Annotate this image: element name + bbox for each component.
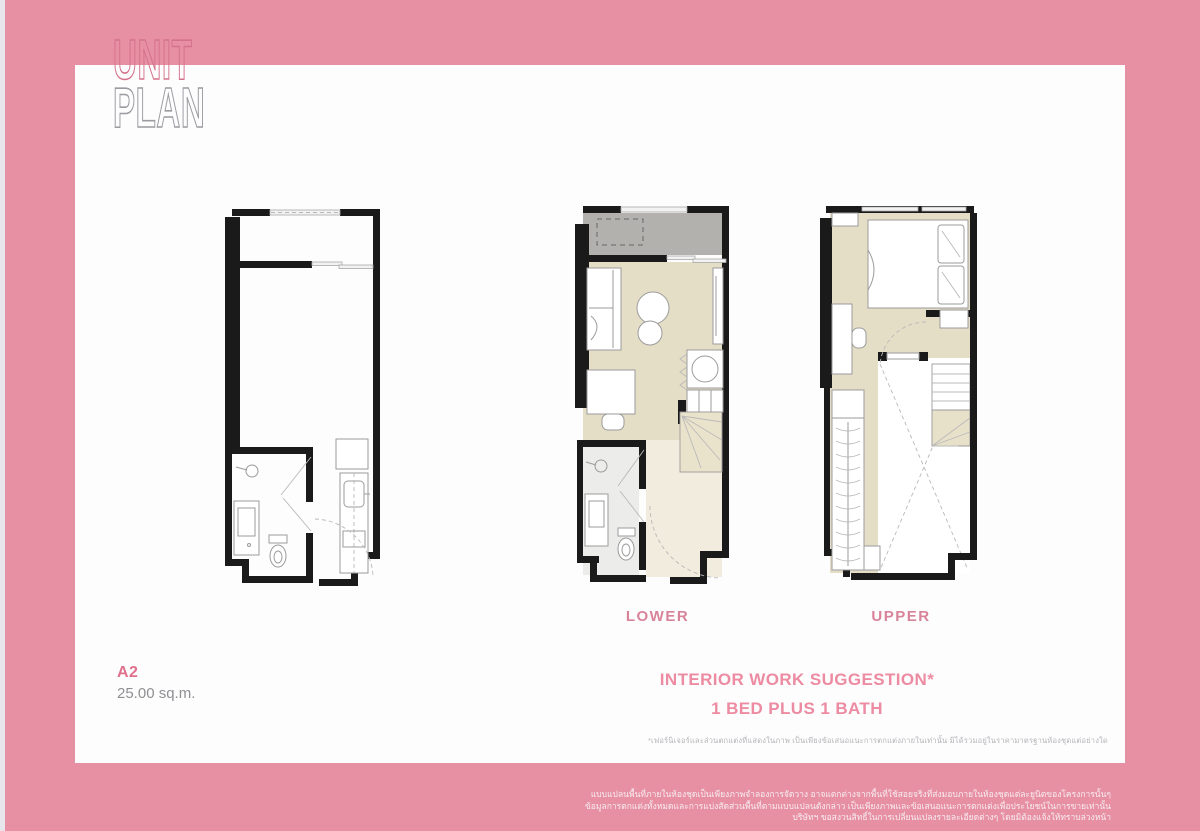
floorplan-upper-drawing [820, 204, 979, 603]
floorplan-a2-drawing [222, 205, 387, 603]
label-lower: LOWER [575, 608, 740, 625]
unit-code: A2 [117, 664, 195, 682]
page-title: UNIT PLAN [113, 36, 272, 132]
floorplan-upper [820, 204, 979, 603]
disclaimer-line: บริษัทฯ ขอสงวนสิทธิ์ในการเปลี่ยนแปลงรายล… [585, 812, 1111, 824]
title-plan: PLAN [113, 84, 205, 132]
interior-suggestion: INTERIOR WORK SUGGESTION* 1 BED PLUS 1 B… [597, 665, 997, 723]
kitchen-counter [336, 439, 370, 573]
staircase [680, 412, 722, 472]
storage-box-icon [864, 546, 880, 570]
unit-plan-page: UNIT PLAN [0, 0, 1200, 831]
sliding-door [667, 256, 726, 263]
counter-icon [687, 390, 723, 412]
floorplan-lower [575, 204, 736, 603]
bed-icon [868, 220, 968, 308]
footer-disclaimer: แบบแปลนพื้นที่ภายในห้องชุดเป็นเพียงภาพจำ… [585, 789, 1111, 824]
footnote-text: *เฟอร์นิเจอร์และส่วนตกแต่งที่แสดงในภาพ เ… [648, 735, 1108, 747]
label-upper: UPPER [820, 608, 982, 625]
bathroom-fixtures [234, 457, 311, 567]
nightstand-icon [940, 310, 968, 328]
floorplan-a2 [222, 205, 387, 603]
sliding-door [312, 262, 373, 269]
floorplan-lower-drawing [575, 204, 736, 603]
balcony-rail [270, 210, 340, 215]
staircase [932, 364, 970, 446]
wardrobe-icon [832, 390, 864, 570]
suggestion-subheading: 1 BED PLUS 1 BATH [597, 694, 997, 723]
disclaimer-line: ข้อมูลการตกแต่งทั้งหมดและการแบ่งสัดส่วนพ… [585, 801, 1111, 813]
unit-info: A2 25.00 sq.m. [117, 664, 195, 702]
balcony-floor [583, 213, 729, 255]
sofa-icon [587, 268, 621, 350]
tv-console-icon [713, 268, 723, 344]
disclaimer-line: แบบแปลนพื้นที่ภายในห้องชุดเป็นเพียงภาพจำ… [585, 789, 1111, 801]
suggestion-heading: INTERIOR WORK SUGGESTION* [597, 665, 997, 694]
unit-area: 25.00 sq.m. [117, 685, 195, 702]
